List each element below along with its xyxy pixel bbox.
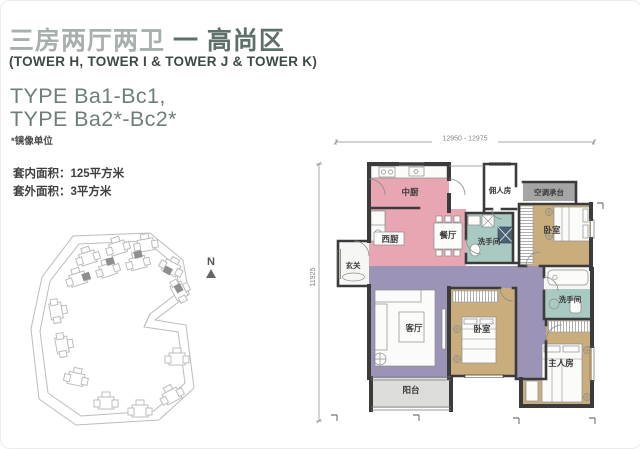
unit-type-line-1: TYPE Ba1-Bc1, — [10, 85, 177, 108]
north-label: N — [207, 256, 215, 268]
master-bath-floor — [544, 289, 592, 319]
inner-hall-floor — [516, 288, 546, 379]
mirror-note: *镜像单位 — [11, 133, 53, 147]
page-title: 三房两厅两卫 一 高尚区 — [9, 21, 285, 57]
inner-area-text: 套内面积：125平方米 — [13, 166, 124, 184]
site-buildings — [48, 232, 194, 417]
label-dining-room: 餐厅 — [438, 230, 457, 240]
dim-top-label: 12950 - 12975 — [442, 136, 487, 143]
label-ac-platform: 空调承台 — [534, 187, 564, 197]
label-maid-room: 佣人房 — [488, 185, 512, 195]
page-title-bold: 一 高尚区 — [173, 27, 285, 55]
page-title-light: 三房两厅两卫 — [9, 27, 165, 55]
area-info: 套内面积：125平方米 套外面积：3平方米 — [13, 166, 124, 202]
label-balcony: 阳台 — [402, 385, 420, 395]
label-bedroom-middle: 卧室 — [473, 324, 491, 334]
label-bedroom-top: 卧室 — [543, 225, 561, 235]
label-west-kitchen: 西厨 — [381, 234, 399, 244]
label-master-bedroom: 主人房 — [548, 358, 574, 368]
north-arrow-icon — [206, 269, 216, 278]
label-guest-bath: 洗手间 — [478, 236, 501, 246]
towers-subtitle: (TOWER H, TOWER I & TOWER J & TOWER K) — [9, 54, 317, 69]
label-center-kitchen: 中厨 — [401, 187, 419, 197]
label-living-room: 客厅 — [404, 323, 423, 333]
hallway-floor — [369, 266, 544, 288]
dim-left-label: 11925 — [310, 267, 317, 286]
floor-plan: 12950 - 12975 11925 中厨 佣人房 空调承台 西厨 餐厅 洗手… — [304, 129, 640, 448]
unit-type-line-2: TYPE Ba2*-Bc2* — [10, 108, 177, 131]
label-master-bath: 洗手间 — [559, 294, 582, 304]
unit-type-lines: TYPE Ba1-Bc1, TYPE Ba2*-Bc2* — [10, 85, 177, 131]
north-arrow: N — [206, 256, 216, 278]
outer-area-text: 套外面积：3平方米 — [13, 184, 124, 202]
brochure-page: 三房两厅两卫 一 高尚区 (TOWER H, TOWER I & TOWER J… — [0, 0, 640, 449]
label-foyer: 玄关 — [346, 260, 361, 270]
site-plan: N — [26, 231, 241, 436]
